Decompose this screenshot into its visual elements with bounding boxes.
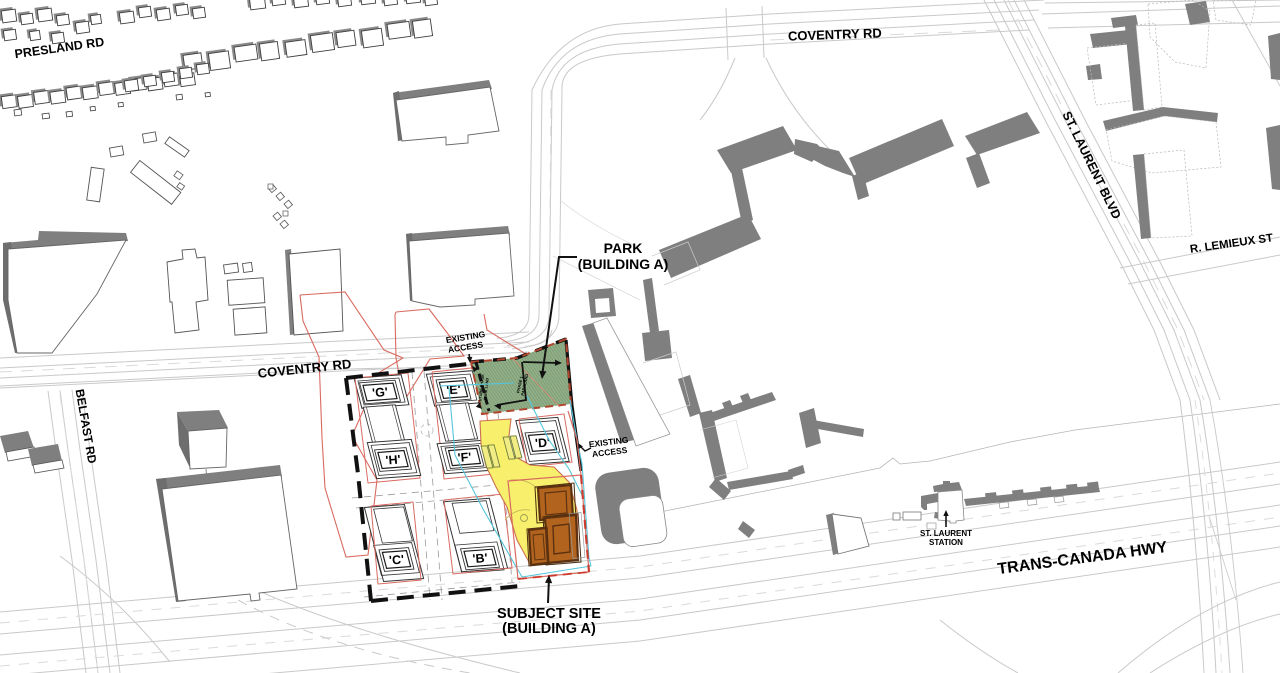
svg-text:SUBJECT SITE: SUBJECT SITE	[497, 606, 601, 622]
svg-text:ST. LAURENT: ST. LAURENT	[920, 529, 972, 538]
svg-text:'H': 'H'	[385, 452, 401, 467]
svg-text:'G': 'G'	[372, 385, 389, 400]
svg-text:STATION: STATION	[929, 538, 963, 547]
svg-text:'C': 'C'	[389, 552, 405, 567]
svg-text:(BUILDING A): (BUILDING A)	[578, 256, 668, 272]
svg-text:PARK: PARK	[604, 240, 643, 256]
svg-text:(BUILDING A): (BUILDING A)	[502, 621, 596, 637]
svg-text:'B': 'B'	[472, 551, 488, 566]
